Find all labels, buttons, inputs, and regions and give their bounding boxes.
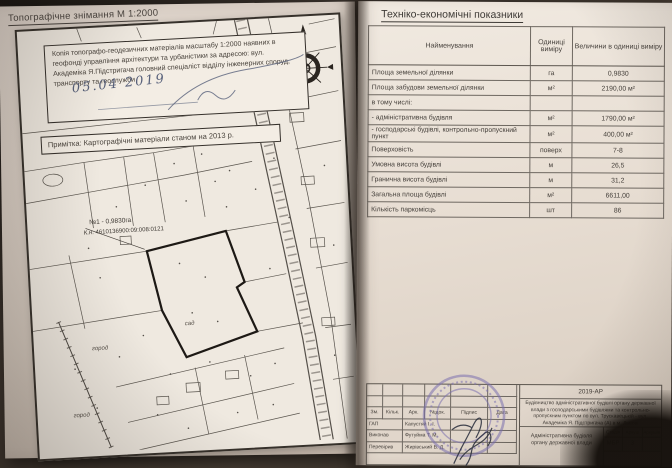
- table-cell: м²: [530, 126, 572, 143]
- table-row: Умовна висота будівлі м 26,5: [368, 157, 664, 174]
- table-row: Кількість паркомісць шт 86: [368, 202, 664, 219]
- table-cell: Умовна висота будівлі: [368, 157, 530, 173]
- table-header-row: Найменування Одиниці виміру Величини в о…: [368, 26, 664, 67]
- table-cell: Гранична висота будівлі: [368, 172, 530, 188]
- column-label: Зм.: [367, 407, 383, 419]
- date-cell: [488, 419, 517, 431]
- sheet-label: Аркуш: [623, 428, 642, 438]
- title-block-info: 2019-АР Будівництво адміністративної буд…: [520, 385, 661, 466]
- role-name: Жирівський В. Д.: [403, 442, 451, 454]
- table-cell: Площа земельної ділянки: [368, 65, 530, 81]
- left-page: Топографічне знімання М 1:2000: [0, 2, 361, 459]
- project-name: Будівництво адміністративної будівлі орг…: [520, 399, 661, 428]
- table-cell: - адміністративна будівля: [368, 110, 530, 126]
- table-cell: [530, 96, 572, 111]
- table-cell: Площа забудови земельної ділянки: [368, 80, 530, 96]
- signature-cell: [451, 431, 488, 443]
- table-cell: Кількість паркомісць: [368, 202, 530, 218]
- subject-parcel-boundary: [85, 219, 258, 362]
- column-label: Дата: [488, 408, 517, 420]
- signature-cell: [451, 419, 488, 431]
- cadastral-number-label: К.н. 4610136900:09:008:0121: [84, 226, 165, 236]
- role-label: Перевірив: [367, 442, 403, 454]
- empty-cell: [403, 384, 425, 396]
- sheets-value: [643, 438, 661, 452]
- table-cell: [572, 96, 664, 111]
- table-cell: м: [530, 173, 572, 188]
- signature-cell: [451, 442, 488, 454]
- table-row: Поверховість поверх 7-8: [368, 142, 664, 159]
- empty-cell: [451, 385, 488, 397]
- table-row: Гранична висота будівлі м 31,2: [368, 172, 664, 189]
- stage-sheet-values: МБР 3: [604, 437, 661, 451]
- empty-cell: [383, 384, 403, 396]
- table-cell: в тому числі:: [368, 95, 530, 111]
- table-cell: 0,9830: [572, 66, 664, 81]
- table-cell: 26,5: [572, 158, 664, 173]
- date-cell: [488, 431, 517, 443]
- empty-cell: [488, 385, 517, 397]
- table-cell: 7-8: [572, 143, 664, 158]
- title-block-revision-grid: Зм. Кільк. Арк. №док. Підпис Дата ГАП Ка…: [367, 384, 520, 465]
- parcel-number-label: №1 - 0,9830га: [89, 217, 132, 226]
- empty-cell: [451, 396, 488, 408]
- table-cell: м²: [530, 81, 572, 96]
- land-use-label: сад: [185, 321, 196, 328]
- table-cell: 1790,00 м²: [572, 111, 664, 126]
- table-row: - господарські будівлі, контрольно-пропу…: [368, 125, 664, 144]
- table-header-cell: Одиниці виміру: [530, 27, 572, 66]
- certification-box: Копія топографо-геодезичних матеріалів м…: [44, 31, 310, 123]
- date-cell: [488, 442, 517, 454]
- sheets-label: Аркушів: [643, 428, 661, 438]
- title-block: Зм. Кільк. Арк. №док. Підпис Дата ГАП Ка…: [366, 383, 662, 467]
- table-cell: 2190,00 м²: [572, 81, 664, 96]
- right-page-title-text: Техніко-економічні показники: [381, 8, 523, 23]
- project-code: 2019-АР: [520, 385, 661, 400]
- column-label: №док.: [425, 408, 451, 420]
- table-row: Загальна площа будівлі м² 6611,00: [368, 187, 664, 204]
- table-row: Площа земельної ділянки га 0,9830: [368, 65, 664, 82]
- table-cell: га: [530, 66, 572, 81]
- left-page-title: Топографічне знімання М 1:2000: [8, 8, 159, 24]
- empty-cell: [488, 396, 517, 408]
- empty-cell: [403, 396, 425, 408]
- map-sheet: ПН №1 - 0,9830га К.н. 4610136900:09:008:…: [15, 12, 364, 461]
- sheet-value: 3: [623, 438, 642, 452]
- role-label: ГАП: [367, 419, 403, 431]
- fence-line: [59, 320, 112, 450]
- empty-cell: [383, 396, 403, 408]
- table-cell: - господарські будівлі, контрольно-пропу…: [368, 125, 530, 143]
- empty-cell: [604, 451, 661, 465]
- table-cell: м: [530, 158, 572, 173]
- photo-of-documents: Топографічне знімання М 1:2000: [0, 0, 672, 468]
- land-use-label: город: [73, 412, 90, 419]
- table-row: в тому числі:: [368, 95, 664, 112]
- pen-marks: [45, 32, 311, 124]
- land-use-label: город: [92, 345, 109, 352]
- empty-cell: [425, 385, 451, 397]
- role-name: Капустяй І. І.: [403, 419, 451, 431]
- stage-sheet-header: Стадія Аркуш Аркушів: [604, 427, 661, 437]
- right-page-title: Техніко-економічні показники: [381, 8, 523, 21]
- table-cell: 400,00 м²: [572, 126, 664, 143]
- table-header-cell: Найменування: [368, 26, 530, 66]
- column-label: Арк.: [403, 407, 425, 419]
- table-row: Площа забудови земельної ділянки м² 2190…: [368, 80, 664, 97]
- empty-cell: [425, 396, 451, 408]
- column-label: Кільк.: [383, 407, 403, 419]
- role-label: Виконав: [367, 430, 403, 442]
- table-cell: шт: [530, 203, 572, 218]
- empty-cell: [367, 396, 383, 408]
- table-cell: 31,2: [572, 173, 664, 188]
- table-cell: м²: [530, 111, 572, 126]
- column-label: Підпис: [451, 408, 488, 420]
- table-cell: 86: [572, 203, 664, 218]
- table-header-cell: Величини в одиниці виміру: [572, 27, 664, 66]
- table-cell: Загальна площа будівлі: [368, 187, 530, 203]
- table-cell: Поверховість: [368, 142, 530, 158]
- table-cell: поверх: [530, 143, 572, 158]
- empty-cell: [367, 384, 383, 396]
- right-page: Техніко-економічні показники Найменуванн…: [356, 1, 672, 467]
- stage-label: Стадія: [604, 427, 623, 437]
- title-block-bottom: Адміністративна будівля органу державної…: [520, 427, 661, 466]
- table-cell: м²: [530, 188, 572, 203]
- role-name: Футуйма Т. М.: [403, 430, 451, 442]
- indicators-table: Найменування Одиниці виміру Величини в о…: [367, 25, 665, 219]
- table-row: - адміністративна будівля м² 1790,00 м²: [368, 110, 664, 127]
- stage-sheet-grid: Стадія Аркуш Аркушів МБР 3: [604, 427, 661, 465]
- drawing-title: Адміністративна будівля органу державної…: [520, 427, 604, 465]
- stage-value: МБР: [604, 437, 623, 451]
- table-cell: 6611,00: [572, 188, 664, 203]
